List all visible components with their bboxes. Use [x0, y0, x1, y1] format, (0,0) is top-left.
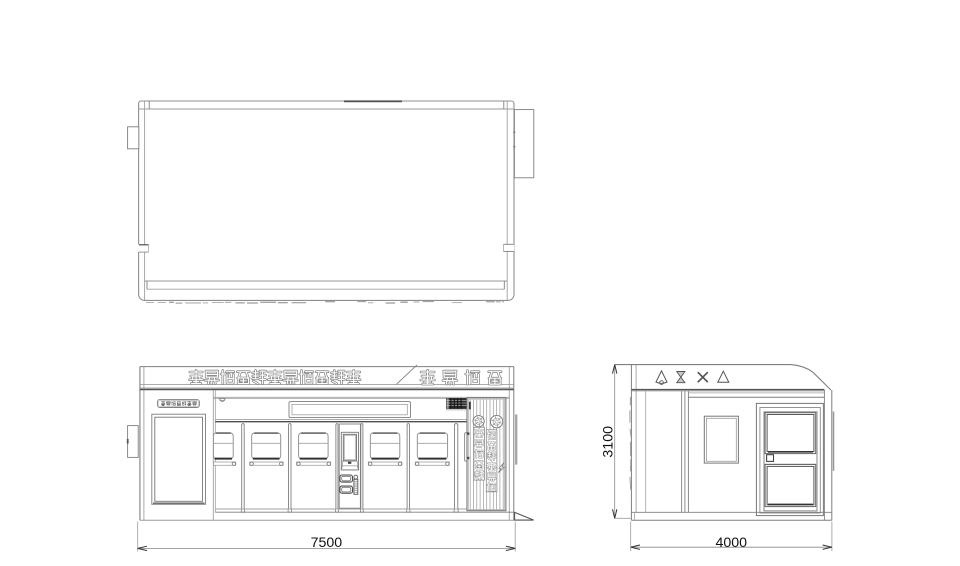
svg-text:3100: 3100 [601, 426, 617, 458]
svg-text:4000: 4000 [716, 535, 748, 551]
svg-text:7500: 7500 [311, 535, 343, 551]
